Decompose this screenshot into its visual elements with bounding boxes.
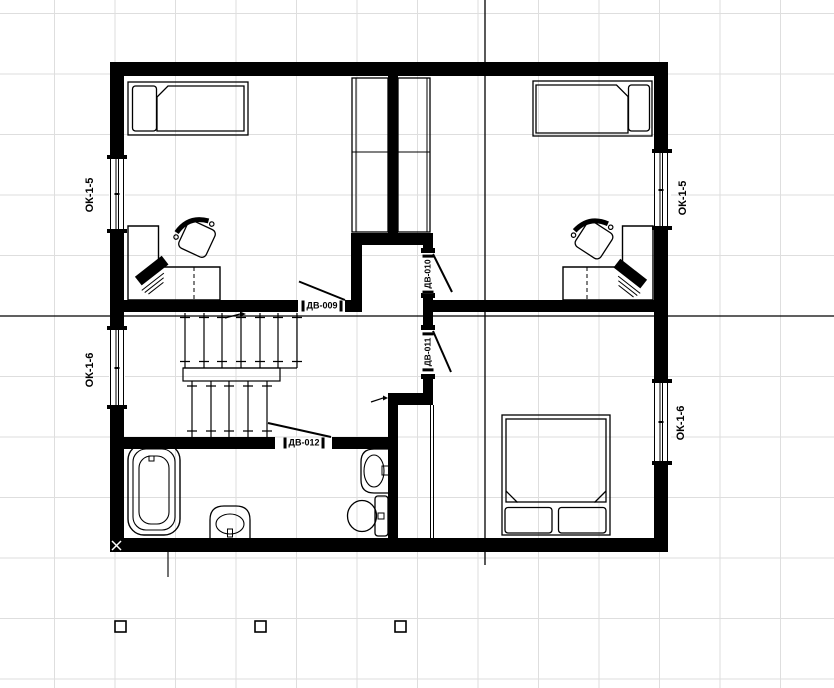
floor-plan-svg (0, 0, 834, 688)
keyboard-right[interactable] (607, 259, 650, 299)
window-left-bottom[interactable] (107, 326, 127, 409)
wardrobe-left[interactable] (352, 78, 388, 232)
wardrobe-right[interactable] (398, 78, 430, 232)
single-bed-left[interactable] (128, 82, 248, 135)
door-label-dv-011[interactable]: ДВ-011 (423, 333, 434, 372)
door-label-dv-012[interactable]: ДВ-012 (284, 438, 325, 449)
window-label-left-top[interactable]: ОК-1-5 (84, 178, 96, 213)
single-bed-right[interactable] (533, 81, 652, 136)
double-bed[interactable] (502, 415, 610, 535)
door-label-dv-009[interactable]: ДВ-009 (302, 301, 343, 312)
door-dv-009[interactable] (299, 282, 345, 301)
grid-point-squares[interactable] (115, 621, 406, 632)
window-label-right-bottom[interactable]: ОК-1-6 (675, 406, 687, 441)
door-dv-012[interactable] (268, 423, 331, 437)
corner-x-marker (110, 539, 123, 552)
reference-lines[interactable] (0, 0, 834, 577)
hall-arrow (371, 396, 388, 403)
desk-chair-left[interactable] (170, 212, 224, 266)
desk-chair-right[interactable] (569, 215, 619, 265)
corner-desk-right[interactable] (563, 226, 653, 300)
bathtub[interactable] (128, 444, 180, 535)
floor-plan-canvas[interactable]: ОК-1-5 ОК-1-6 ОК-1-5 ОК-1-6 ДВ-009 ДВ-01… (0, 0, 834, 688)
window-right-top[interactable] (652, 149, 672, 230)
window-label-right-top[interactable]: ОК-1-5 (677, 181, 689, 216)
window-right-bottom[interactable] (652, 379, 672, 465)
staircase[interactable] (180, 312, 302, 438)
window-left-top[interactable] (107, 155, 127, 233)
washbasin[interactable] (361, 449, 389, 493)
door-label-dv-010[interactable]: ДВ-010 (423, 254, 434, 293)
keyboard-left[interactable] (133, 256, 176, 296)
window-label-left-bottom[interactable]: ОК-1-6 (84, 353, 96, 388)
toilet[interactable] (348, 496, 389, 536)
pedestal-sink[interactable] (210, 506, 250, 538)
closet-partition-line[interactable] (431, 405, 434, 538)
